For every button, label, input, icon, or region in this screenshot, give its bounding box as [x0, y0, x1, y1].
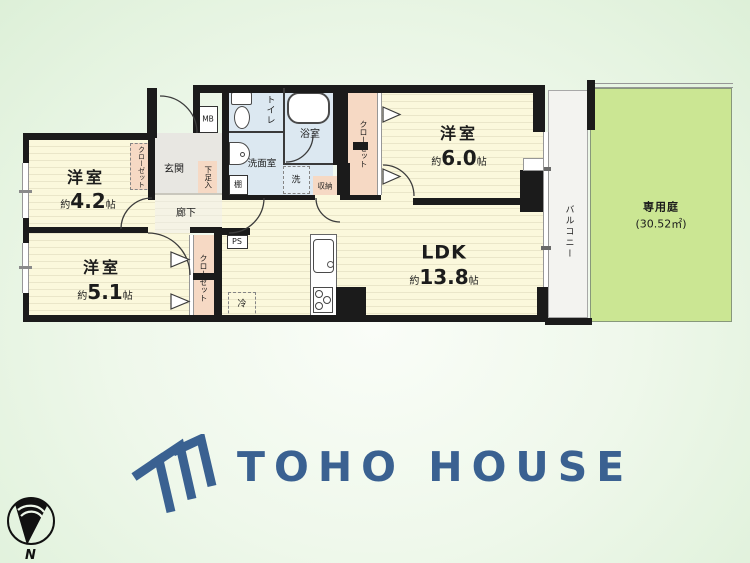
- wall: [545, 318, 592, 325]
- window-tick: [19, 266, 32, 269]
- burner-icon: [315, 290, 323, 298]
- washbasin-drain-icon: [240, 152, 245, 157]
- toilet-bowl-icon: [234, 106, 250, 129]
- burner-icon: [315, 302, 323, 310]
- partition-wall: [283, 88, 285, 165]
- window-tick: [19, 190, 32, 193]
- entrance-label: 玄関: [164, 165, 184, 175]
- balcony-label: バルコニー: [564, 205, 573, 260]
- room-ldk: [222, 195, 545, 322]
- pipe-space-label: PS: [232, 238, 242, 246]
- page-background: 洋室 約4.2帖 洋室 約5.1帖 洋室 約6.0帖 LDK 約13.8帖 玄関…: [0, 0, 750, 563]
- partition-wall: [229, 131, 283, 133]
- wall: [520, 170, 543, 212]
- toilet-tank-icon: [231, 92, 252, 105]
- room-name: 洋室: [67, 170, 105, 186]
- wall: [147, 88, 157, 138]
- window-sill: [523, 158, 544, 171]
- meter-box-label: MB: [202, 115, 214, 123]
- wall: [193, 85, 200, 133]
- entrance-step-line: [155, 193, 222, 195]
- wall: [340, 195, 381, 200]
- shoe-box-label: 下足入: [204, 166, 212, 189]
- logo-chevron: [134, 460, 171, 512]
- toho-house-logo-icon: [131, 434, 223, 516]
- wall: [23, 315, 545, 322]
- wall: [333, 88, 348, 165]
- closet-6-0-door: [377, 93, 382, 195]
- shelf-label: 棚: [234, 181, 242, 189]
- room-name: 洋室: [83, 260, 121, 276]
- closet-label: クローゼット: [359, 120, 367, 168]
- compass-north-label: N: [25, 548, 36, 562]
- room-size: 約13.8帖: [409, 267, 478, 287]
- toilet-label: トイレ: [265, 95, 274, 125]
- storage-label: 収納: [318, 182, 333, 190]
- window: [543, 132, 549, 287]
- wall: [222, 195, 315, 200]
- wall: [533, 85, 545, 132]
- room-size: 約5.1帖: [77, 282, 132, 302]
- room-size: 約6.0帖: [431, 148, 486, 168]
- faucet-icon: [327, 261, 334, 268]
- window-tick: [541, 246, 551, 250]
- room-name: LDK: [421, 244, 467, 263]
- wall: [148, 133, 155, 200]
- compass-icon: N: [5, 492, 67, 562]
- room-name: 洋室: [440, 126, 478, 142]
- washer-label: 洗: [291, 177, 300, 186]
- closet-label: クローゼット: [199, 254, 207, 302]
- closet-label: クローゼット: [138, 146, 145, 188]
- wall: [537, 287, 548, 322]
- burner-icon: [323, 296, 331, 304]
- washroom-label: 洗面室: [248, 159, 277, 169]
- wall: [413, 198, 523, 205]
- refrigerator-label: 冷: [237, 301, 246, 310]
- wall: [193, 85, 545, 93]
- wall: [336, 287, 366, 322]
- garden-label: 専用庭: [643, 202, 679, 213]
- wall: [214, 233, 222, 322]
- bathroom-label: 浴室: [300, 130, 320, 140]
- wall: [23, 133, 153, 140]
- bathtub-icon: [287, 92, 330, 124]
- partition-wall: [283, 163, 333, 165]
- hallway-label: 廊下: [176, 209, 196, 219]
- garden-top-edge: [587, 83, 733, 88]
- room-size: 約4.2帖: [60, 191, 115, 211]
- wall: [23, 227, 148, 233]
- wall: [337, 163, 350, 195]
- logo-wordmark: TOHO HOUSE: [237, 447, 633, 488]
- wall: [587, 80, 595, 130]
- door-arc: [160, 96, 197, 133]
- garden-area-label: (30.52㎡): [635, 219, 686, 230]
- logo-chevron: [173, 439, 212, 486]
- wall: [222, 93, 229, 198]
